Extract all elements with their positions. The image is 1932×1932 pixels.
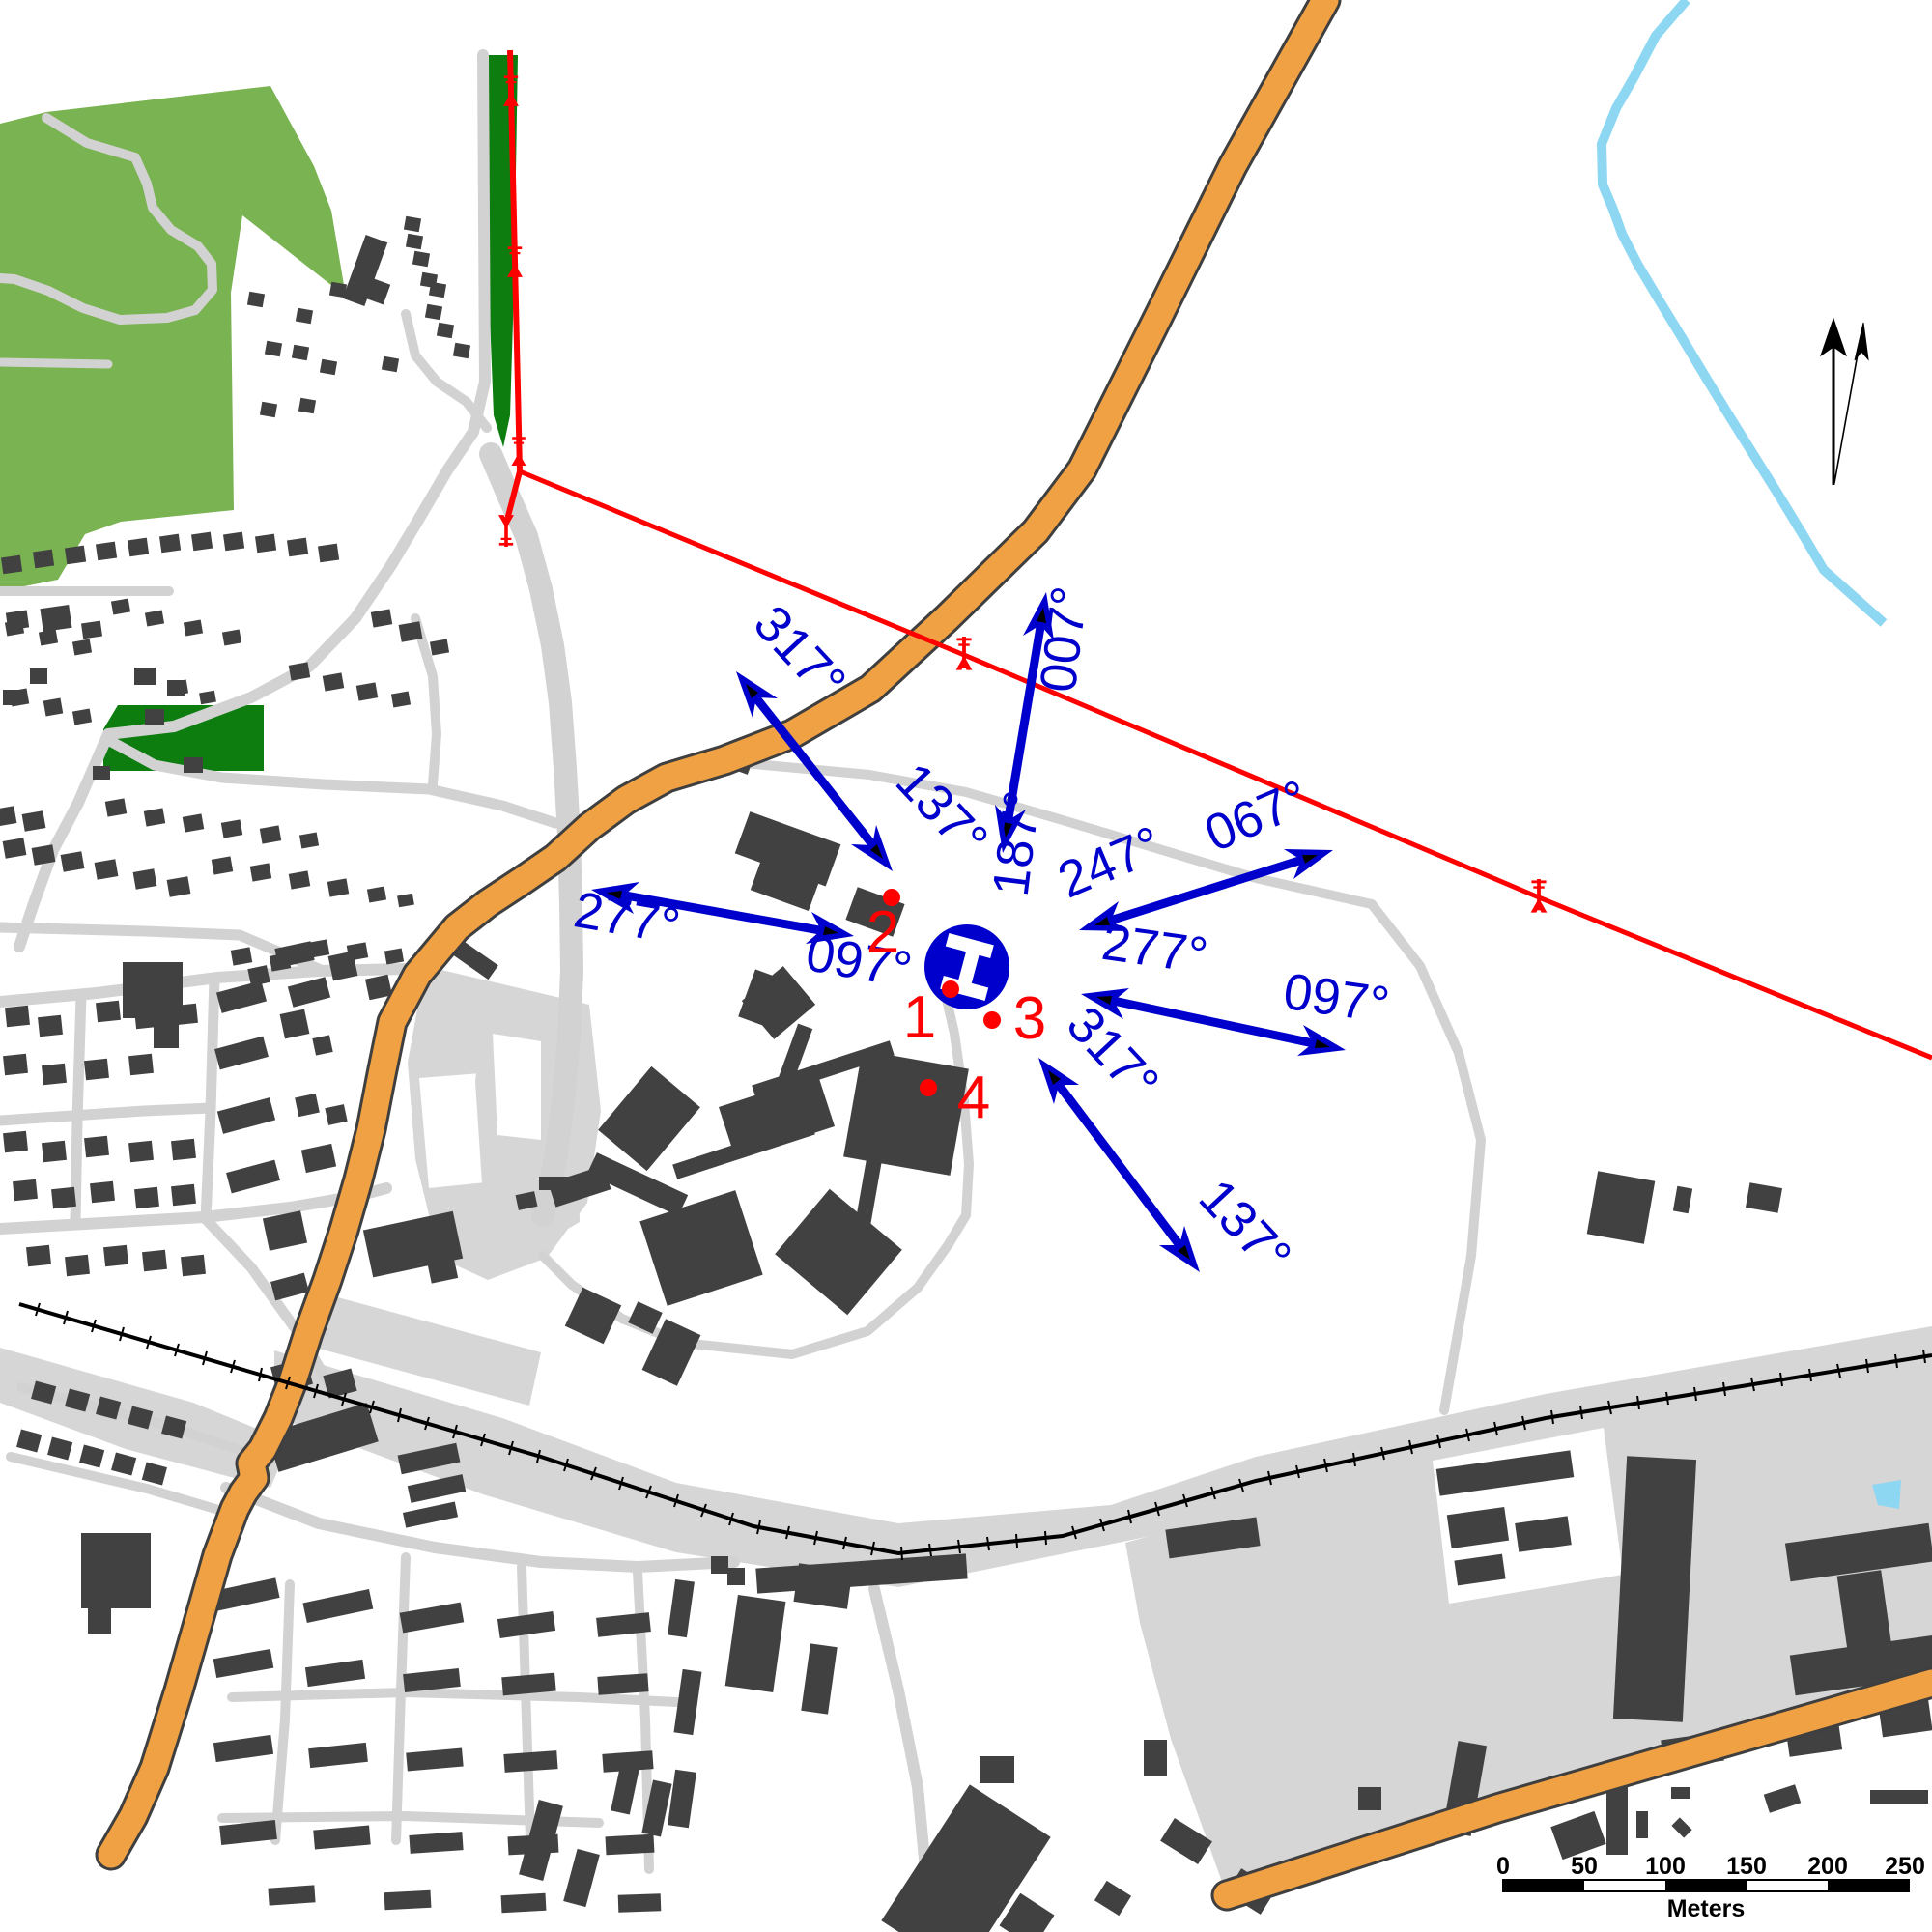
svg-text:1: 1 [903, 984, 936, 1051]
svg-text:4: 4 [957, 1065, 990, 1131]
svg-text:150: 150 [1726, 1853, 1767, 1880]
svg-text:100: 100 [1645, 1853, 1686, 1880]
svg-text:250: 250 [1885, 1853, 1925, 1880]
svg-text:50: 50 [1571, 1853, 1598, 1880]
svg-text:Meters: Meters [1667, 1895, 1746, 1922]
svg-text:3: 3 [1013, 985, 1046, 1052]
svg-text:200: 200 [1807, 1853, 1848, 1880]
svg-text:0: 0 [1496, 1853, 1510, 1880]
svg-text:2: 2 [867, 899, 899, 966]
